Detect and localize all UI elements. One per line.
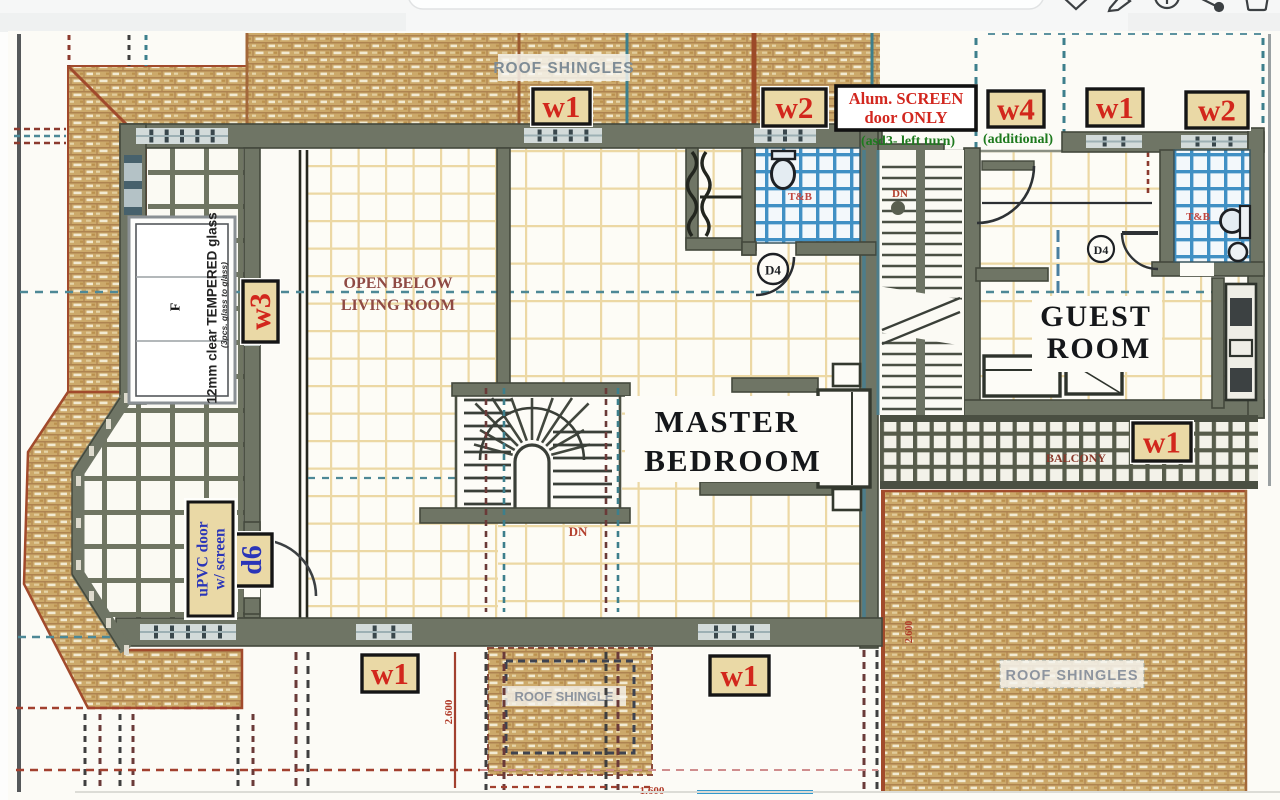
svg-text:D4: D4 (765, 263, 781, 278)
svg-text:D4: D4 (1094, 243, 1109, 257)
svg-text:DN: DN (892, 188, 908, 200)
svg-text:uPVC door: uPVC door (195, 521, 212, 596)
svg-text:ROOF SHINGLES: ROOF SHINGLES (1005, 668, 1138, 684)
svg-text:T&B: T&B (1186, 211, 1211, 223)
svg-text:w/ screen: w/ screen (212, 528, 229, 590)
svg-text:ROOF SHINGLES: ROOF SHINGLES (493, 60, 634, 77)
svg-text:(asd3- left turn): (asd3- left turn) (861, 134, 955, 149)
svg-text:(additional): (additional) (983, 132, 1053, 147)
svg-text:d6: d6 (237, 545, 268, 575)
svg-text:(3pcs. glass to glass): (3pcs. glass to glass) (219, 262, 229, 348)
svg-text:w2: w2 (1198, 93, 1236, 128)
svg-text:OPEN BELOW: OPEN BELOW (344, 275, 453, 292)
svg-text:GUEST: GUEST (1040, 300, 1152, 333)
svg-text:w1: w1 (721, 658, 759, 693)
svg-text:w1: w1 (543, 89, 581, 124)
svg-text:BALCONY: BALCONY (1046, 451, 1106, 465)
svg-text:T&B: T&B (788, 191, 813, 203)
svg-text:BEDROOM: BEDROOM (644, 443, 822, 478)
svg-text:MASTER: MASTER (655, 404, 800, 439)
svg-text:F: F (169, 303, 184, 312)
svg-text:w4: w4 (997, 92, 1035, 127)
svg-text:w3: w3 (244, 293, 277, 330)
svg-text:w1: w1 (1096, 90, 1134, 125)
svg-text:ROOM: ROOM (1047, 332, 1152, 365)
svg-text:LIVING ROOM: LIVING ROOM (341, 297, 455, 314)
svg-text:ROOF SHINGLE: ROOF SHINGLE (515, 689, 614, 704)
svg-text:2.600: 2.600 (904, 621, 915, 644)
svg-text:w1: w1 (371, 656, 409, 691)
svg-text:12mm clear TEMPERED glass: 12mm clear TEMPERED glass (205, 212, 220, 403)
svg-text:Alum. SCREEN: Alum. SCREEN (849, 89, 964, 108)
svg-text:DN: DN (569, 524, 588, 539)
svg-text:w1: w1 (1143, 425, 1181, 460)
svg-text:door ONLY: door ONLY (865, 108, 948, 127)
svg-text:2.600: 2.600 (443, 699, 455, 724)
svg-text:w2: w2 (776, 90, 814, 125)
